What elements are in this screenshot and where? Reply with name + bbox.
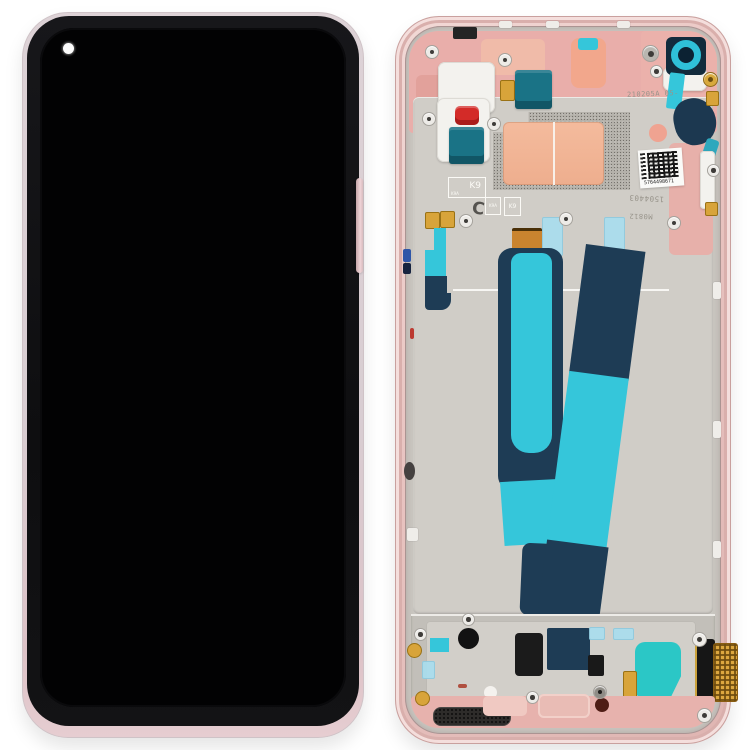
midframe-back-assembly: 210205A 05- 1504403 M0812 5764498671 K9A… <box>395 16 731 744</box>
screw <box>667 216 681 230</box>
screw <box>707 164 720 177</box>
microphone-hole <box>458 628 479 649</box>
side-flex-cable <box>425 293 451 310</box>
frame-slot <box>713 421 721 438</box>
screw <box>650 65 663 78</box>
screw <box>642 45 659 62</box>
component-block <box>588 655 604 676</box>
screw <box>559 212 573 226</box>
screw <box>593 685 607 699</box>
screw <box>462 613 475 626</box>
sticker-number: 5764498671 <box>644 178 674 186</box>
k9-stencil-box: K9A K9 <box>448 177 486 198</box>
thermal-pad-seam <box>553 122 555 185</box>
k9-main-label: K9 <box>469 181 481 191</box>
frame-notch <box>617 21 630 28</box>
front-camera-hole <box>63 43 74 54</box>
etched-code: 1504403 <box>629 193 665 204</box>
side-button-contact <box>403 249 411 262</box>
rear-camera-housing <box>666 37 706 75</box>
vibration-motor <box>455 106 479 125</box>
side-flex-tape <box>434 228 446 252</box>
gold-mini-flex <box>623 671 637 699</box>
frame-slot <box>407 528 418 541</box>
gold-contact-dot <box>407 643 422 658</box>
screw <box>526 691 539 704</box>
side-port-hole <box>404 462 415 480</box>
screw <box>422 112 436 126</box>
side-bracket <box>700 151 715 209</box>
screw <box>692 632 707 647</box>
gold-contact <box>705 202 718 216</box>
taped-component <box>515 70 552 109</box>
lcd-flex-tape <box>511 253 552 453</box>
blue-tab <box>422 661 435 679</box>
copper-contact <box>512 228 542 250</box>
adhesive-dot <box>649 124 667 142</box>
screw <box>414 628 427 641</box>
component-block <box>515 633 543 676</box>
screw <box>697 708 712 723</box>
side-button-contact <box>403 263 411 274</box>
antenna-contact-block <box>453 27 477 39</box>
screw-hole-dark <box>595 698 609 712</box>
side-marker <box>410 328 414 339</box>
screw <box>498 53 512 67</box>
side-flex-tape <box>425 250 446 278</box>
blue-tab <box>613 628 634 640</box>
etched-date-code: M0812 <box>629 212 653 220</box>
product-photo: 210205A 05- 1504403 M0812 5764498671 K9A… <box>0 0 750 750</box>
fpc-board-connector <box>713 643 738 702</box>
screw <box>459 214 473 228</box>
sticker-side-code <box>640 153 647 179</box>
k9a-stencil-box: K9A <box>485 197 501 215</box>
frame-notch <box>546 21 559 28</box>
taped-component <box>449 127 484 164</box>
gold-contact <box>706 91 719 106</box>
gold-contact-pad <box>440 211 455 228</box>
k9-stencil-box-small: K9 <box>504 197 521 216</box>
fpc-connector-base <box>695 639 715 703</box>
screw <box>703 72 718 87</box>
frame-notch <box>499 21 512 28</box>
blue-tab <box>589 627 605 640</box>
gold-contact-pad <box>425 212 440 229</box>
lcd-front-assembly <box>22 12 364 738</box>
paint-mark <box>458 684 467 688</box>
barcode-sticker: 5764498671 <box>638 148 685 189</box>
power-button <box>356 178 363 273</box>
plastic-insert <box>483 696 527 716</box>
tape-tab <box>430 638 449 652</box>
adhesive-teal-pad <box>635 642 681 699</box>
k9-sub-label: K9A <box>451 191 459 196</box>
screw <box>487 117 501 131</box>
datamatrix-barcode <box>647 151 679 179</box>
front-bezel <box>27 16 359 726</box>
tape-tab <box>578 38 598 50</box>
frame-slot <box>713 541 721 558</box>
frame-slot <box>713 282 721 299</box>
gold-screw <box>415 691 430 706</box>
plastic-insert <box>538 694 590 718</box>
screw <box>425 45 439 59</box>
lcd-screen <box>40 28 346 707</box>
rear-camera-lens <box>671 40 701 70</box>
component-block-navy <box>547 628 590 670</box>
gold-component <box>500 80 515 101</box>
